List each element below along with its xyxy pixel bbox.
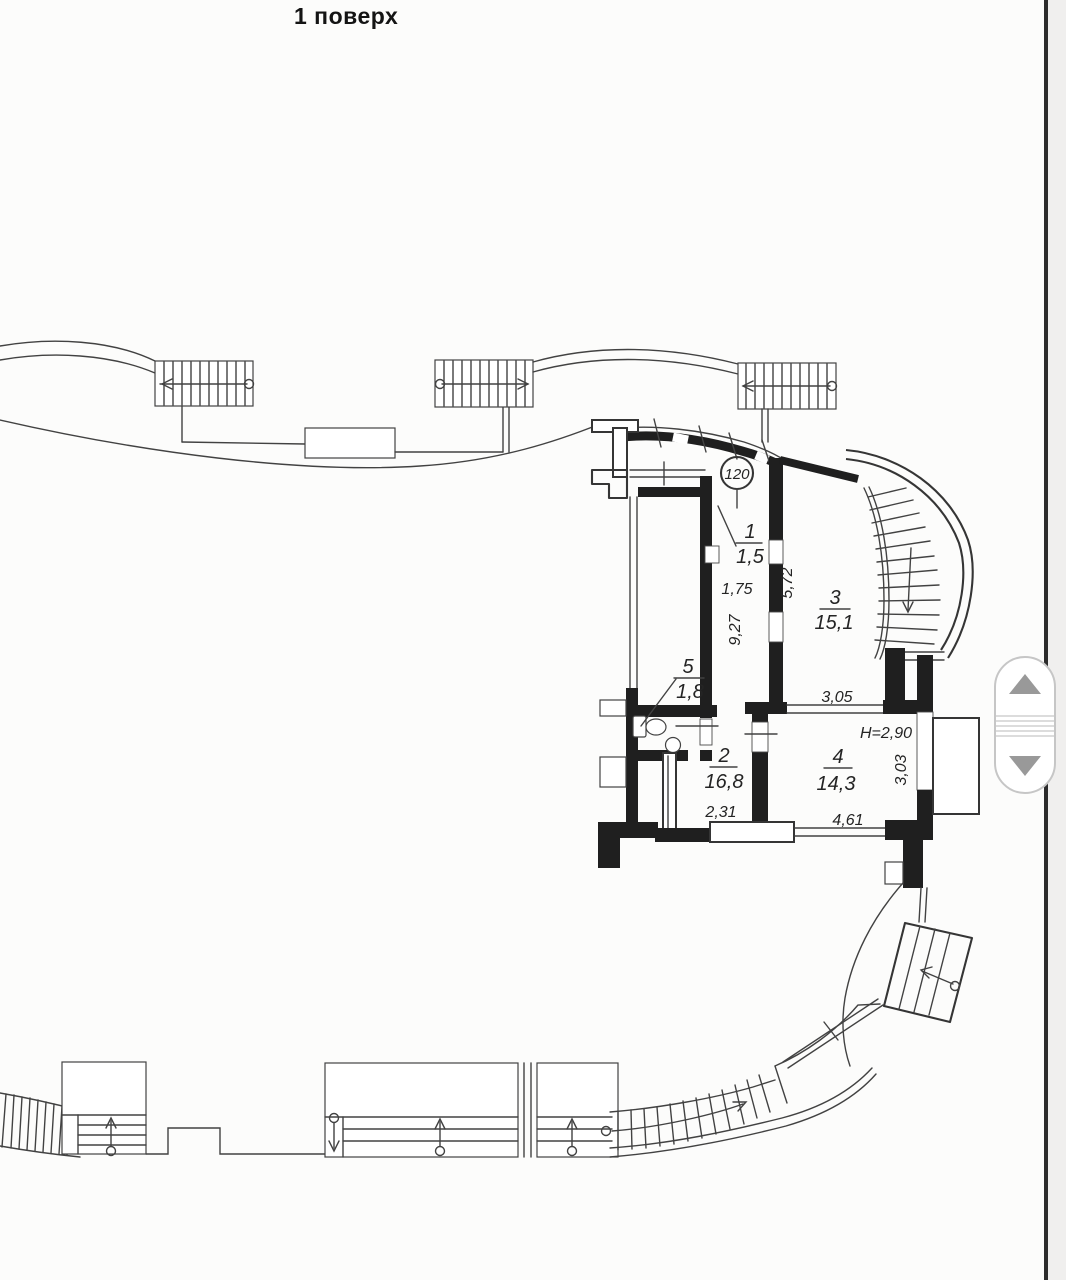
- window: [917, 712, 933, 790]
- pilaster: [600, 757, 626, 787]
- unit-number-bubble: 120: [721, 457, 753, 508]
- wall-window-gap: [769, 612, 783, 642]
- left-wall-structures: [592, 420, 712, 688]
- room2-room4-divider: [745, 713, 777, 840]
- scroll-grip[interactable]: [996, 712, 1054, 738]
- wall-box: [705, 546, 719, 563]
- dim-5-72: 5,72: [779, 567, 796, 598]
- room-5-number: 5: [682, 656, 694, 678]
- room-3-area: 15,1: [815, 612, 854, 634]
- curved-stair-room3: [846, 450, 973, 660]
- dim-1-75: 1,75: [721, 581, 752, 598]
- scanned-page: 1 поверх: [0, 0, 1066, 1280]
- ceiling-height-label: H=2,90: [860, 725, 912, 742]
- door-gap: [752, 722, 768, 752]
- toilet-tank: [633, 716, 646, 737]
- room-5-area: 1,8: [676, 681, 704, 703]
- room-4-number: 4: [832, 746, 843, 768]
- stairs-top-middle: [435, 360, 533, 407]
- unit-number: 120: [724, 466, 750, 483]
- scroll-up-icon[interactable]: [1009, 674, 1041, 694]
- stairs-top-right: [738, 363, 837, 442]
- leader-line: [718, 506, 736, 546]
- toilet-bowl: [646, 719, 666, 735]
- balcony-door-threshold: [710, 822, 794, 842]
- dim-9-27: 9,27: [727, 613, 744, 645]
- wall-window-gap: [769, 540, 783, 564]
- room-1-number: 1: [744, 521, 755, 543]
- room-3-number: 3: [829, 587, 840, 609]
- stairs-bottom-left: [0, 1062, 325, 1157]
- page-gutter: [1048, 0, 1066, 1280]
- room-2-area: 16,8: [705, 771, 744, 793]
- room-1-area: 1,5: [736, 546, 765, 568]
- room-4-area: 14,3: [817, 773, 856, 795]
- room-2-number: 2: [717, 745, 729, 767]
- dim-3-03: 3,03: [893, 754, 910, 785]
- floor-plan: 120: [0, 0, 1066, 1280]
- dim-2-31: 2,31: [704, 804, 736, 821]
- stairs-top-left: [155, 361, 254, 406]
- dim-4-61: 4,61: [832, 812, 863, 829]
- dim-3-05: 3,05: [821, 689, 852, 706]
- balcony-top-right: [533, 350, 738, 375]
- stairs-bottom-right: [783, 883, 972, 1068]
- pilaster: [600, 700, 626, 716]
- loggia: [933, 718, 979, 814]
- stairs-bottom-curve: [602, 1004, 881, 1157]
- stairs-bottom-middle: [325, 1063, 618, 1157]
- scroll-widget[interactable]: [994, 656, 1056, 794]
- facade-curve-right: [843, 883, 903, 1066]
- scroll-down-icon[interactable]: [1009, 756, 1041, 776]
- room2-door-leaf: [663, 753, 676, 831]
- door-gap: [700, 719, 712, 745]
- sink: [666, 738, 681, 753]
